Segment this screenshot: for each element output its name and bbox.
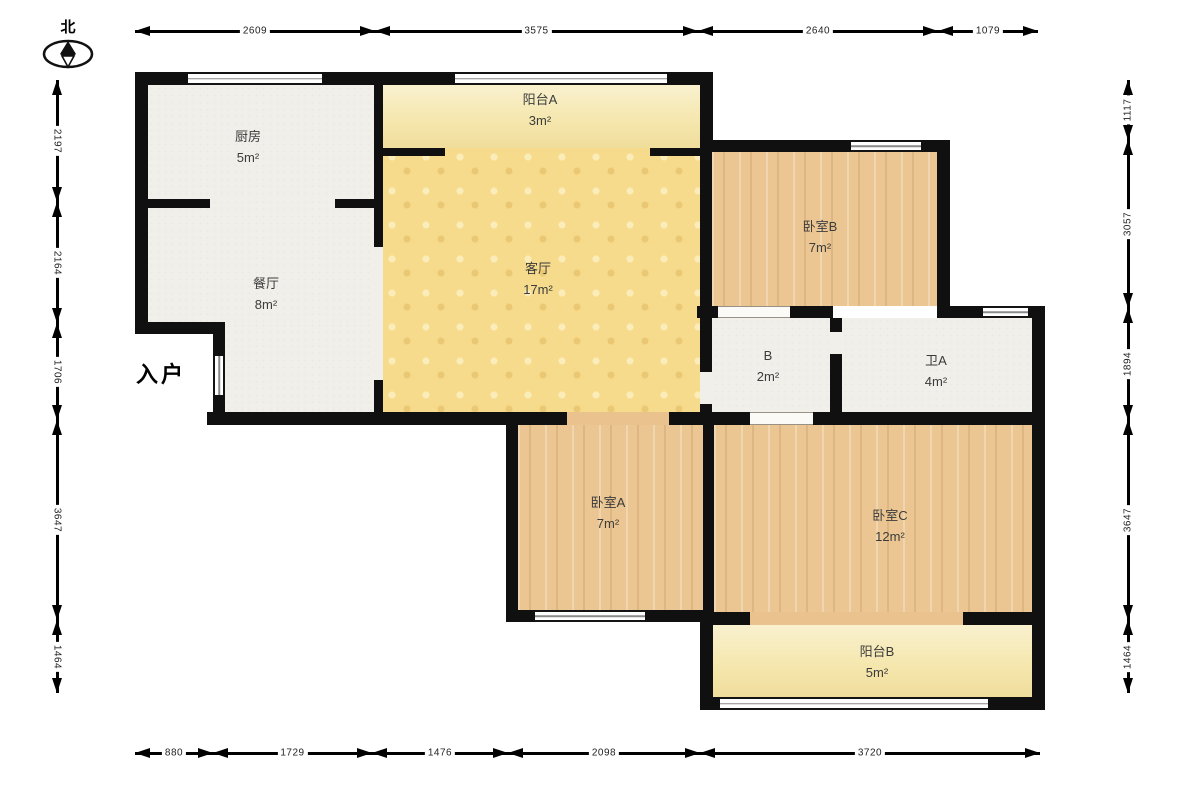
dimension-segment-bottom: 3720 xyxy=(700,752,1040,755)
arrow-down-icon xyxy=(52,678,62,693)
room-name: 卧室C xyxy=(872,506,907,527)
room-name: 卧室A xyxy=(591,493,626,514)
arrow-up-icon xyxy=(52,620,62,635)
arrow-down-icon xyxy=(52,187,62,202)
room-area: 4m² xyxy=(925,372,947,393)
dimension-value: 1729 xyxy=(277,748,307,759)
arrow-left-icon xyxy=(698,26,713,36)
wall-opening xyxy=(567,412,669,425)
wall xyxy=(374,380,383,425)
wall xyxy=(650,148,700,156)
wall xyxy=(830,318,842,332)
wall xyxy=(213,395,225,425)
dimension-segment-top: 1079 xyxy=(938,30,1038,33)
arrow-right-icon xyxy=(360,26,375,36)
arrow-up-icon xyxy=(52,323,62,338)
wall xyxy=(700,612,750,625)
wall-opening xyxy=(750,612,963,625)
arrow-right-icon xyxy=(493,748,508,758)
dimension-value: 1706 xyxy=(52,356,63,386)
arrow-right-icon xyxy=(685,748,700,758)
dimension-segment-bottom: 1476 xyxy=(372,752,508,755)
arrow-left-icon xyxy=(938,26,953,36)
window xyxy=(188,72,322,85)
room-label-balcony-b: 阳台B5m² xyxy=(860,642,895,684)
wall xyxy=(700,152,712,372)
room-label-living: 客厅17m² xyxy=(523,259,553,301)
window-glass-line xyxy=(188,78,322,80)
arrow-left-icon xyxy=(372,748,387,758)
wall xyxy=(1032,306,1045,710)
dimension-segment-left: 2164 xyxy=(56,202,59,323)
window xyxy=(851,140,921,152)
dimension-value: 1117 xyxy=(1123,96,1134,125)
wall xyxy=(700,612,713,710)
room-label-balcony-a: 阳台A3m² xyxy=(523,90,558,132)
room-label-bath-a: 卫A4m² xyxy=(925,351,947,393)
arrow-left-icon xyxy=(135,748,150,758)
arrow-up-icon xyxy=(1123,420,1133,435)
room-area: 7m² xyxy=(803,238,838,259)
window xyxy=(535,610,645,622)
dimension-segment-top: 2609 xyxy=(135,30,375,33)
room-name: B xyxy=(757,346,779,367)
entrance-door xyxy=(213,356,225,395)
dimension-segment-left: 1706 xyxy=(56,323,59,420)
arrow-right-icon xyxy=(1025,748,1040,758)
room-area: 5m² xyxy=(860,663,895,684)
room-name: 卫A xyxy=(925,351,947,372)
dimension-segment-right: 3647 xyxy=(1127,420,1130,620)
arrow-down-icon xyxy=(1123,405,1133,420)
room-label-bedroom-b: 卧室B7m² xyxy=(803,217,838,259)
dimension-value: 2164 xyxy=(52,247,63,277)
dimension-value: 1464 xyxy=(1123,641,1134,671)
wall xyxy=(937,140,950,318)
room-name: 阳台A xyxy=(523,90,558,111)
dimension-value: 3647 xyxy=(52,505,63,535)
north-indicator: 北 xyxy=(40,16,96,75)
dimension-segment-bottom: 2098 xyxy=(508,752,700,755)
dimension-segment-bottom: 880 xyxy=(135,752,213,755)
dimension-value: 2197 xyxy=(52,126,63,156)
wall xyxy=(830,354,842,412)
arrow-up-icon xyxy=(52,202,62,217)
dimension-value: 2640 xyxy=(803,26,833,37)
dimension-segment-top: 2640 xyxy=(698,30,938,33)
dimension-value: 1476 xyxy=(425,748,455,759)
arrow-left-icon xyxy=(213,748,228,758)
room-label-bedroom-a: 卧室A7m² xyxy=(591,493,626,535)
arrow-left-icon xyxy=(375,26,390,36)
arrow-down-icon xyxy=(1123,125,1133,140)
arrow-down-icon xyxy=(52,605,62,620)
dimension-value: 880 xyxy=(162,748,186,759)
dimension-segment-left: 3647 xyxy=(56,420,59,620)
arrow-left-icon xyxy=(700,748,715,758)
arrow-up-icon xyxy=(52,420,62,435)
dimension-segment-right: 3057 xyxy=(1127,140,1130,308)
wall-opening xyxy=(700,372,712,404)
room-name: 餐厅 xyxy=(253,274,279,295)
dimension-segment-right: 1117 xyxy=(1127,80,1130,140)
arrow-up-icon xyxy=(52,80,62,95)
room-dining xyxy=(225,322,374,412)
window-glass-line xyxy=(851,145,921,147)
north-label: 北 xyxy=(40,16,96,37)
window xyxy=(720,697,988,710)
arrow-left-icon xyxy=(508,748,523,758)
window-glass-line xyxy=(983,311,1028,313)
arrow-down-icon xyxy=(52,405,62,420)
room-name: 卧室B xyxy=(803,217,838,238)
wall xyxy=(703,412,714,622)
room-label-dining: 餐厅8m² xyxy=(253,274,279,316)
room-area: 12m² xyxy=(872,527,907,548)
floor-plan: 北 入户 厨房5m²阳台A3m²客厅17m²卧室B7m²餐厅8m²B2m²卫A4… xyxy=(0,0,1177,785)
wall xyxy=(335,199,383,208)
wall xyxy=(140,199,210,208)
room-area: 3m² xyxy=(523,111,558,132)
dimension-segment-top: 3575 xyxy=(375,30,698,33)
door-leaf-line xyxy=(218,356,220,395)
dimension-value: 1079 xyxy=(973,26,1003,37)
arrow-right-icon xyxy=(1023,26,1038,36)
dimension-value: 3647 xyxy=(1123,505,1134,535)
arrow-right-icon xyxy=(198,748,213,758)
wall xyxy=(963,612,1032,625)
room-label-bedroom-c: 卧室C12m² xyxy=(872,506,907,548)
dimension-segment-right: 1464 xyxy=(1127,620,1130,693)
room-name: 厨房 xyxy=(235,127,261,148)
arrow-down-icon xyxy=(52,308,62,323)
entrance-label: 入户 xyxy=(136,357,186,389)
room-name: 阳台B xyxy=(860,642,895,663)
window-glass-line xyxy=(720,703,988,705)
wall xyxy=(669,412,1032,425)
room-area: 17m² xyxy=(523,280,553,301)
door-opening xyxy=(718,306,790,318)
dimension-segment-bottom: 1729 xyxy=(213,752,372,755)
door-opening xyxy=(750,412,813,425)
arrow-right-icon xyxy=(357,748,372,758)
wall-opening xyxy=(374,247,383,380)
dimension-value: 3575 xyxy=(521,26,551,37)
room-area: 2m² xyxy=(757,367,779,388)
dimension-value: 1464 xyxy=(52,641,63,671)
arrow-left-icon xyxy=(135,26,150,36)
arrow-down-icon xyxy=(1123,678,1133,693)
arrow-right-icon xyxy=(923,26,938,36)
arrow-down-icon xyxy=(1123,605,1133,620)
wall-opening xyxy=(830,332,842,354)
room-area: 8m² xyxy=(253,295,279,316)
arrow-right-icon xyxy=(683,26,698,36)
dimension-value: 2098 xyxy=(589,748,619,759)
room-area: 7m² xyxy=(591,514,626,535)
wall xyxy=(374,85,383,247)
compass-icon xyxy=(41,38,95,70)
window xyxy=(455,72,667,85)
room-label-hall-b: B2m² xyxy=(757,346,779,388)
dimension-segment-left: 1464 xyxy=(56,620,59,693)
arrow-down-icon xyxy=(1123,293,1133,308)
wall xyxy=(506,412,518,622)
room-area: 5m² xyxy=(235,148,261,169)
dimension-value: 1894 xyxy=(1123,349,1134,379)
arrow-up-icon xyxy=(1123,80,1133,95)
window xyxy=(983,306,1028,318)
dimension-segment-left: 2197 xyxy=(56,80,59,202)
dimension-value: 3057 xyxy=(1123,209,1134,239)
dimension-segment-right: 1894 xyxy=(1127,308,1130,420)
room-label-kitchen: 厨房5m² xyxy=(235,127,261,169)
wall xyxy=(135,322,225,334)
wall xyxy=(383,148,445,156)
dimension-value: 3720 xyxy=(855,748,885,759)
window-glass-line xyxy=(535,615,645,617)
dimension-value: 2609 xyxy=(240,26,270,37)
arrow-up-icon xyxy=(1123,140,1133,155)
arrow-up-icon xyxy=(1123,308,1133,323)
window-glass-line xyxy=(455,78,667,80)
wall xyxy=(207,412,567,425)
room-name: 客厅 xyxy=(523,259,553,280)
arrow-up-icon xyxy=(1123,620,1133,635)
